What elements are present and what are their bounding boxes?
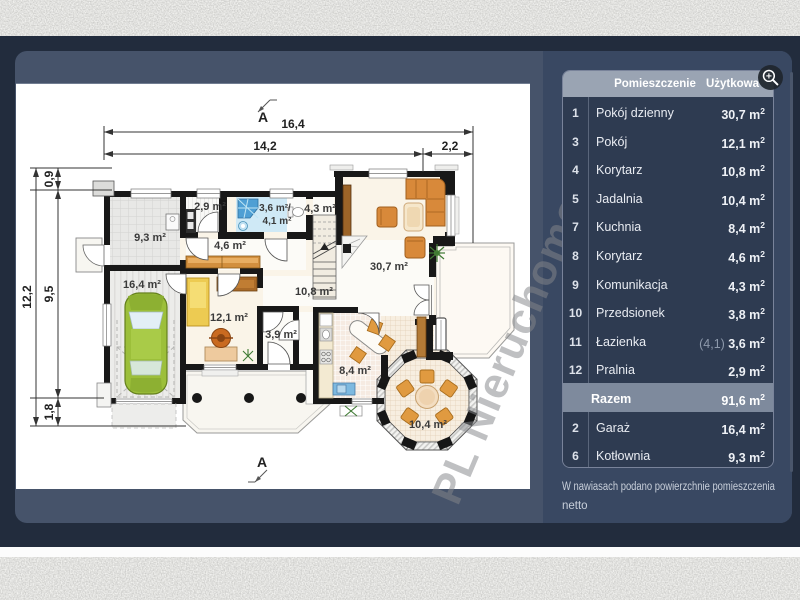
svg-text:16,4: 16,4	[281, 117, 305, 131]
svg-text:10,8 m²: 10,8 m²	[295, 286, 333, 298]
svg-text:12,1 m²: 12,1 m²	[210, 312, 248, 324]
svg-text:9,3 m²: 9,3 m²	[134, 232, 166, 244]
svg-text:4,1 m²: 4,1 m²	[263, 216, 293, 227]
svg-text:2,2: 2,2	[442, 139, 459, 153]
svg-text:0,9: 0,9	[42, 170, 56, 187]
svg-text:2,9 m²: 2,9 m²	[194, 201, 226, 213]
svg-text:16,4 m²: 16,4 m²	[123, 279, 161, 291]
svg-text:10,4 m²: 10,4 m²	[409, 419, 447, 431]
svg-text:8,4 m²: 8,4 m²	[339, 365, 371, 377]
svg-text:3,6 m²/: 3,6 m²/	[259, 203, 291, 214]
svg-text:A: A	[257, 454, 267, 470]
svg-text:30,7 m²: 30,7 m²	[370, 261, 408, 273]
svg-text:A: A	[258, 109, 268, 125]
svg-text:12,2: 12,2	[20, 285, 34, 309]
svg-text:3,9 m²: 3,9 m²	[265, 329, 297, 341]
svg-text:1,8: 1,8	[42, 403, 56, 420]
svg-text:4,3 m²: 4,3 m²	[304, 203, 336, 215]
svg-text:4,6 m²: 4,6 m²	[214, 240, 246, 252]
svg-text:14,2: 14,2	[253, 139, 277, 153]
svg-text:9,5: 9,5	[42, 285, 56, 302]
